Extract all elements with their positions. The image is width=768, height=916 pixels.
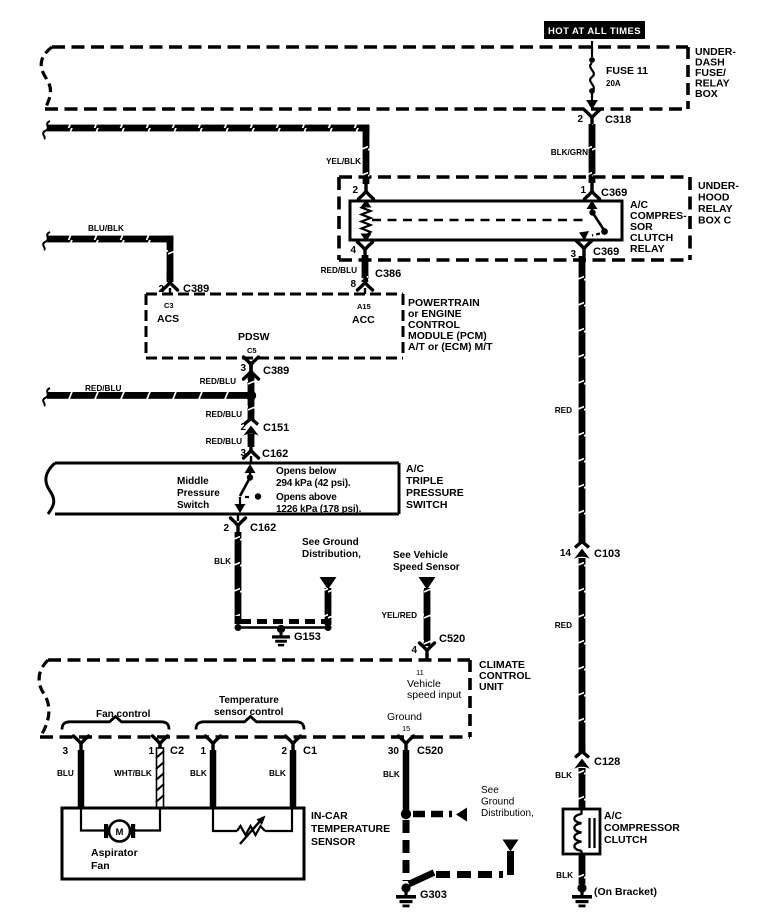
svg-text:C369: C369	[593, 246, 619, 258]
svg-text:C103: C103	[594, 548, 620, 560]
svg-text:BLK: BLK	[383, 770, 400, 779]
svg-text:AspiratorFan: AspiratorFan	[91, 847, 138, 872]
svg-text:C5: C5	[247, 346, 257, 355]
svg-text:2: 2	[577, 114, 583, 125]
svg-text:15: 15	[402, 724, 410, 733]
svg-text:BLU/BLK: BLU/BLK	[88, 224, 124, 233]
svg-text:2: 2	[281, 746, 287, 757]
svg-text:YEL/BLK: YEL/BLK	[326, 157, 361, 166]
svg-text:ACC: ACC	[352, 314, 375, 326]
svg-text:BLK: BLK	[190, 769, 207, 778]
svg-text:Ground: Ground	[387, 711, 422, 723]
svg-text:4: 4	[350, 245, 356, 256]
svg-text:BLK: BLK	[214, 557, 231, 566]
svg-text:C162: C162	[262, 448, 288, 460]
svg-text:UNDER-HOODRELAYBOX C: UNDER-HOODRELAYBOX C	[698, 180, 739, 227]
svg-text:2: 2	[223, 523, 229, 534]
svg-text:ACS: ACS	[157, 313, 179, 325]
svg-text:C520: C520	[417, 745, 443, 757]
svg-text:1: 1	[200, 746, 206, 757]
svg-text:C318: C318	[605, 114, 631, 126]
svg-text:3: 3	[62, 746, 68, 757]
svg-text:C386: C386	[375, 268, 401, 280]
svg-text:BLK: BLK	[556, 871, 573, 880]
svg-text:30: 30	[388, 746, 400, 757]
svg-text:Opens below294 kPa (42 psi).Op: Opens below294 kPa (42 psi).Opens above1…	[276, 466, 362, 515]
svg-text:3: 3	[240, 448, 246, 459]
svg-text:BLU: BLU	[57, 769, 74, 778]
svg-text:(On Bracket): (On Bracket)	[594, 886, 657, 898]
svg-text:2: 2	[240, 422, 246, 433]
svg-text:CLIMATECONTROLUNIT: CLIMATECONTROLUNIT	[479, 659, 531, 693]
svg-text:C151: C151	[263, 422, 289, 434]
svg-text:HOT AT ALL TIMES: HOT AT ALL TIMES	[548, 26, 641, 37]
svg-text:C2: C2	[170, 745, 184, 757]
svg-text:MiddlePressureSwitch: MiddlePressureSwitch	[177, 476, 220, 511]
svg-text:4: 4	[411, 645, 417, 656]
svg-text:BLK/GRN: BLK/GRN	[551, 148, 588, 157]
svg-text:C1: C1	[303, 745, 317, 757]
svg-text:G303: G303	[420, 889, 447, 901]
svg-text:IN-CARTEMPERATURESENSOR: IN-CARTEMPERATURESENSOR	[311, 810, 390, 848]
svg-text:Fan control: Fan control	[96, 709, 151, 720]
svg-text:UNDER-DASHFUSE/RELAYBOX: UNDER-DASHFUSE/RELAYBOX	[695, 46, 736, 100]
svg-text:BLK: BLK	[269, 769, 286, 778]
svg-text:C389: C389	[263, 365, 289, 377]
svg-text:C369: C369	[601, 187, 627, 199]
svg-text:8: 8	[350, 279, 356, 290]
svg-text:RED/BLU: RED/BLU	[200, 377, 236, 386]
svg-text:PDSW: PDSW	[238, 331, 270, 343]
svg-text:See GroundDistribution,: See GroundDistribution,	[302, 537, 361, 560]
svg-text:RED/BLU: RED/BLU	[206, 410, 242, 419]
svg-text:20A: 20A	[606, 79, 621, 88]
svg-text:RED/BLU: RED/BLU	[85, 384, 121, 393]
svg-text:3: 3	[240, 363, 246, 374]
svg-text:11: 11	[416, 668, 424, 677]
svg-text:See VehicleSpeed Sensor: See VehicleSpeed Sensor	[393, 550, 460, 573]
svg-text:1: 1	[148, 746, 154, 757]
svg-text:speed input: speed input	[407, 689, 461, 701]
svg-text:RED: RED	[555, 406, 572, 415]
svg-text:M: M	[116, 827, 124, 838]
svg-text:C3: C3	[164, 301, 174, 310]
svg-text:SeeGroundDistribution,: SeeGroundDistribution,	[481, 785, 534, 819]
svg-text:BLK: BLK	[555, 771, 572, 780]
svg-text:A/CTRIPLEPRESSURESWITCH: A/CTRIPLEPRESSURESWITCH	[406, 463, 464, 511]
svg-text:A/CCOMPRESSORCLUTCH: A/CCOMPRESSORCLUTCH	[604, 810, 680, 846]
svg-text:3: 3	[570, 249, 576, 260]
svg-text:RED/BLU: RED/BLU	[321, 266, 357, 275]
svg-text:14: 14	[560, 548, 572, 559]
svg-text:RED: RED	[555, 621, 572, 630]
svg-text:WHT/BLK: WHT/BLK	[114, 769, 152, 778]
svg-text:POWERTRAINor ENGINECONTROLMODU: POWERTRAINor ENGINECONTROLMODULE (PCM)A/…	[408, 297, 493, 353]
svg-text:A/CCOMPRES-SORCLUTCHRELAY: A/CCOMPRES-SORCLUTCHRELAY	[630, 199, 687, 255]
svg-text:C520: C520	[439, 633, 465, 645]
svg-text:2: 2	[352, 185, 358, 196]
svg-text:YEL/RED: YEL/RED	[382, 611, 418, 620]
svg-text:1: 1	[580, 185, 586, 196]
svg-text:C128: C128	[594, 756, 620, 768]
svg-text:FUSE 11: FUSE 11	[606, 65, 648, 77]
svg-text:G153: G153	[294, 631, 321, 643]
svg-text:Temperaturesensor control: Temperaturesensor control	[214, 695, 284, 718]
svg-text:RED/BLU: RED/BLU	[206, 437, 242, 446]
svg-text:A15: A15	[357, 302, 371, 311]
svg-text:C162: C162	[250, 522, 276, 534]
